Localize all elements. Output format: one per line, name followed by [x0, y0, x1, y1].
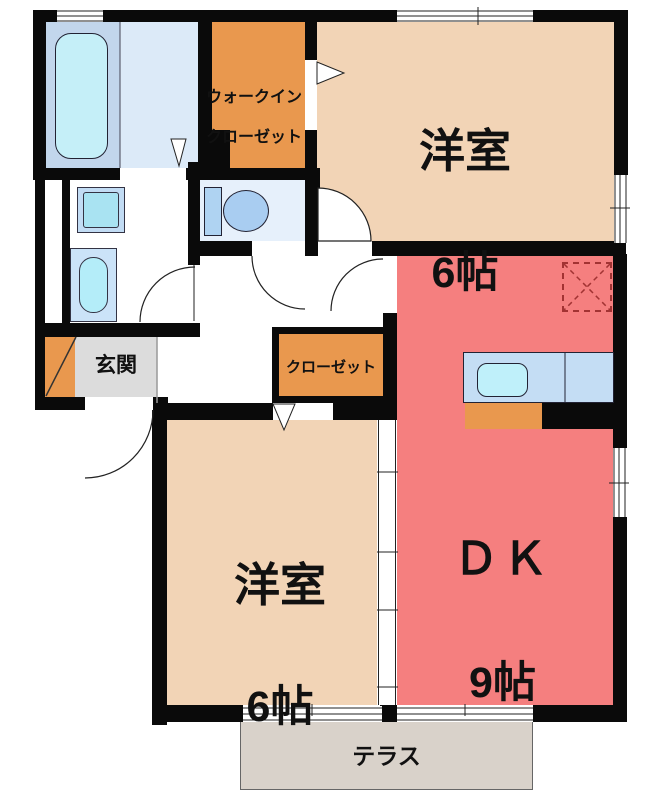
washing-machine-drum [79, 257, 108, 313]
bathroom-floor [120, 22, 198, 168]
washbasin [77, 187, 125, 233]
bath-door-opening [120, 168, 186, 180]
walk-in-closet-label: ウォークイン クローゼット [198, 68, 310, 148]
dk-window-east [613, 448, 626, 517]
toilet-bowl [223, 190, 269, 232]
bath-window [57, 10, 103, 22]
wall [200, 241, 252, 256]
door-arc-washroom [140, 267, 195, 322]
washroom-door-opening [188, 265, 200, 323]
kitchen-sink [477, 363, 528, 397]
bedroom-top-window-north [397, 10, 533, 22]
terrace-label: テラス [240, 742, 533, 771]
dk-label: ＤＫ 9帖 [400, 464, 605, 776]
entrance-porch [45, 337, 75, 397]
toilet-tank [204, 187, 222, 236]
bedroom-top-label: 洋室 6帖 [360, 58, 570, 364]
wic-label-line2: クローゼット [206, 129, 302, 146]
wall [152, 403, 167, 725]
wall [35, 168, 45, 340]
floor-plan: ウォークイン クローゼット 洋室 6帖 玄関 クローゼット 洋室 6帖 ＤＫ 9… [0, 0, 650, 800]
wic-label-line1: ウォークイン [206, 89, 302, 106]
bedroom-top-name: 洋室 [360, 120, 570, 182]
bedroom-top-window-east [614, 175, 627, 243]
dk-size: 9帖 [400, 653, 605, 713]
door-arc-toilet [252, 256, 305, 309]
bathtub [55, 33, 108, 159]
bedroom-top-size: 6帖 [360, 244, 570, 302]
closet-label: クローゼット [276, 359, 386, 378]
washing-machine [70, 248, 117, 322]
wall [33, 10, 46, 170]
stove [465, 403, 542, 429]
wall [613, 517, 627, 722]
door-arc-entrance [85, 410, 153, 478]
washbasin-bowl [83, 192, 119, 228]
dk-name: ＤＫ [400, 527, 605, 590]
wall [614, 10, 628, 175]
toilet-door-opening [252, 241, 305, 256]
bedroom-bottom-door-opening [273, 403, 333, 420]
entrance-door-opening [85, 397, 153, 410]
wall [35, 397, 85, 410]
wall [188, 162, 200, 265]
wall [33, 10, 628, 22]
entrance-label: 玄関 [80, 353, 152, 379]
kitchen-counter-end [542, 403, 614, 429]
wall [62, 178, 70, 323]
wall [35, 323, 200, 337]
bedroom-bottom-size: 6帖 [175, 678, 385, 736]
wall [613, 254, 627, 448]
bedroom-bottom-name: 洋室 [175, 554, 385, 616]
